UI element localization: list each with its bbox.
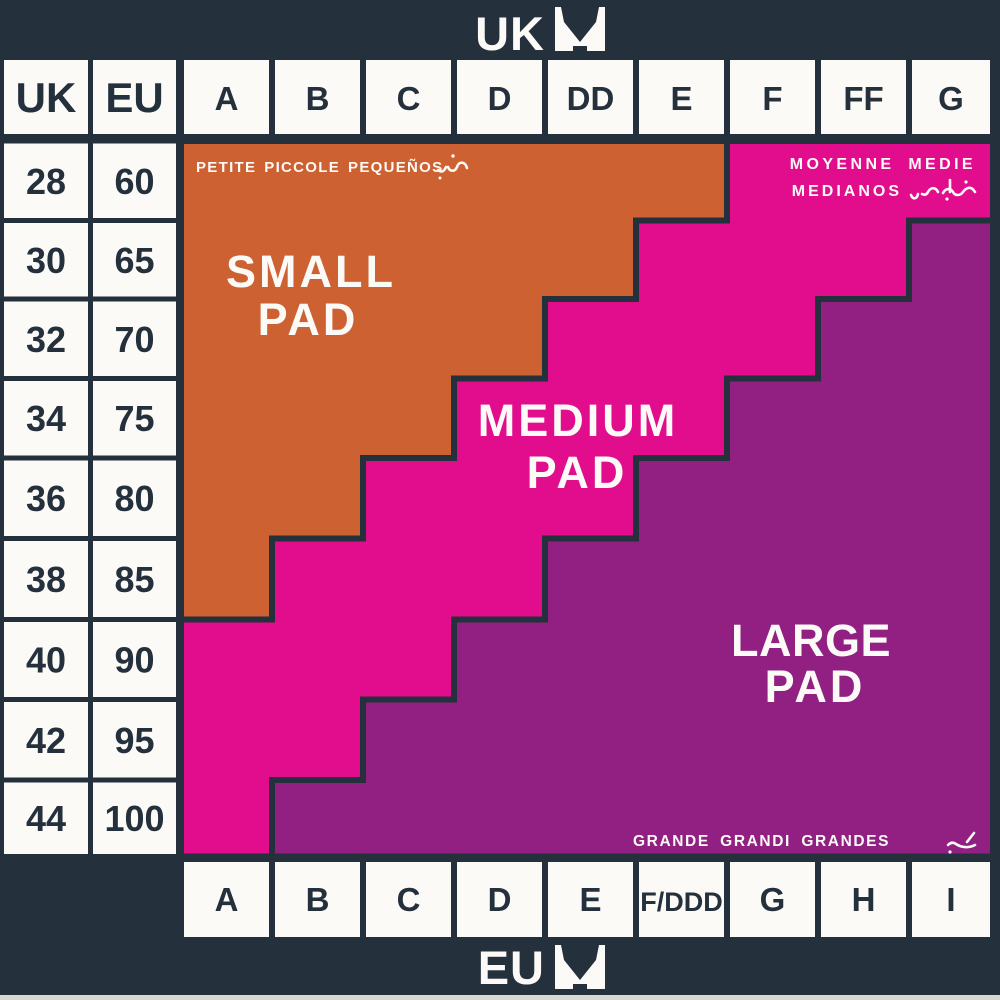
svg-text:80: 80 bbox=[114, 478, 154, 519]
svg-text:G: G bbox=[938, 80, 964, 117]
svg-text:75: 75 bbox=[114, 398, 154, 439]
svg-text:30: 30 bbox=[26, 240, 66, 281]
svg-text:H: H bbox=[852, 881, 876, 918]
svg-text:85: 85 bbox=[114, 559, 154, 600]
svg-text:PETITE PICCOLE PEQUEÑOS: PETITE PICCOLE PEQUEÑOS bbox=[196, 158, 443, 176]
svg-text:44: 44 bbox=[26, 798, 66, 839]
svg-text:65: 65 bbox=[114, 240, 154, 281]
svg-text:I: I bbox=[946, 881, 955, 918]
svg-text:32: 32 bbox=[26, 319, 66, 360]
svg-text:34: 34 bbox=[26, 398, 66, 439]
svg-text:E: E bbox=[670, 80, 692, 117]
svg-text:100: 100 bbox=[104, 798, 164, 839]
svg-text:C: C bbox=[397, 881, 421, 918]
svg-text:E: E bbox=[579, 881, 601, 918]
svg-text:B: B bbox=[306, 80, 330, 117]
svg-text:DD: DD bbox=[567, 80, 615, 117]
svg-text:28: 28 bbox=[26, 161, 66, 202]
svg-text:EU: EU bbox=[478, 941, 545, 994]
svg-text:MEDIANOS: MEDIANOS bbox=[792, 183, 902, 200]
svg-text:GRANDE GRANDI GRANDES: GRANDE GRANDI GRANDES bbox=[633, 833, 890, 850]
svg-text:EU: EU bbox=[105, 74, 163, 121]
svg-text:38: 38 bbox=[26, 559, 66, 600]
svg-text:C: C bbox=[397, 80, 421, 117]
svg-text:PAD: PAD bbox=[527, 447, 628, 498]
svg-text:36: 36 bbox=[26, 478, 66, 519]
svg-text:90: 90 bbox=[114, 640, 154, 681]
svg-text:60: 60 bbox=[114, 161, 154, 202]
svg-text:F/DDD: F/DDD bbox=[640, 887, 723, 917]
svg-text:PAD: PAD bbox=[258, 294, 359, 345]
svg-text:LARGE: LARGE bbox=[731, 615, 891, 666]
svg-text:UK: UK bbox=[475, 7, 545, 60]
svg-text:95: 95 bbox=[114, 720, 154, 761]
svg-text:D: D bbox=[488, 80, 512, 117]
svg-text:A: A bbox=[215, 80, 239, 117]
svg-text:F: F bbox=[762, 80, 782, 117]
svg-text:40: 40 bbox=[26, 640, 66, 681]
svg-text:70: 70 bbox=[114, 319, 154, 360]
svg-text:G: G bbox=[760, 881, 786, 918]
svg-text:UK: UK bbox=[16, 74, 77, 121]
svg-text:PAD: PAD bbox=[765, 661, 866, 712]
svg-text:B: B bbox=[306, 881, 330, 918]
svg-text:MEDIUM: MEDIUM bbox=[478, 395, 678, 446]
svg-text:A: A bbox=[215, 881, 239, 918]
svg-text:MOYENNE MEDIE: MOYENNE MEDIE bbox=[790, 156, 976, 173]
svg-text:42: 42 bbox=[26, 720, 66, 761]
svg-text:D: D bbox=[488, 881, 512, 918]
svg-text:SMALL: SMALL bbox=[226, 246, 396, 297]
svg-text:FF: FF bbox=[843, 80, 883, 117]
